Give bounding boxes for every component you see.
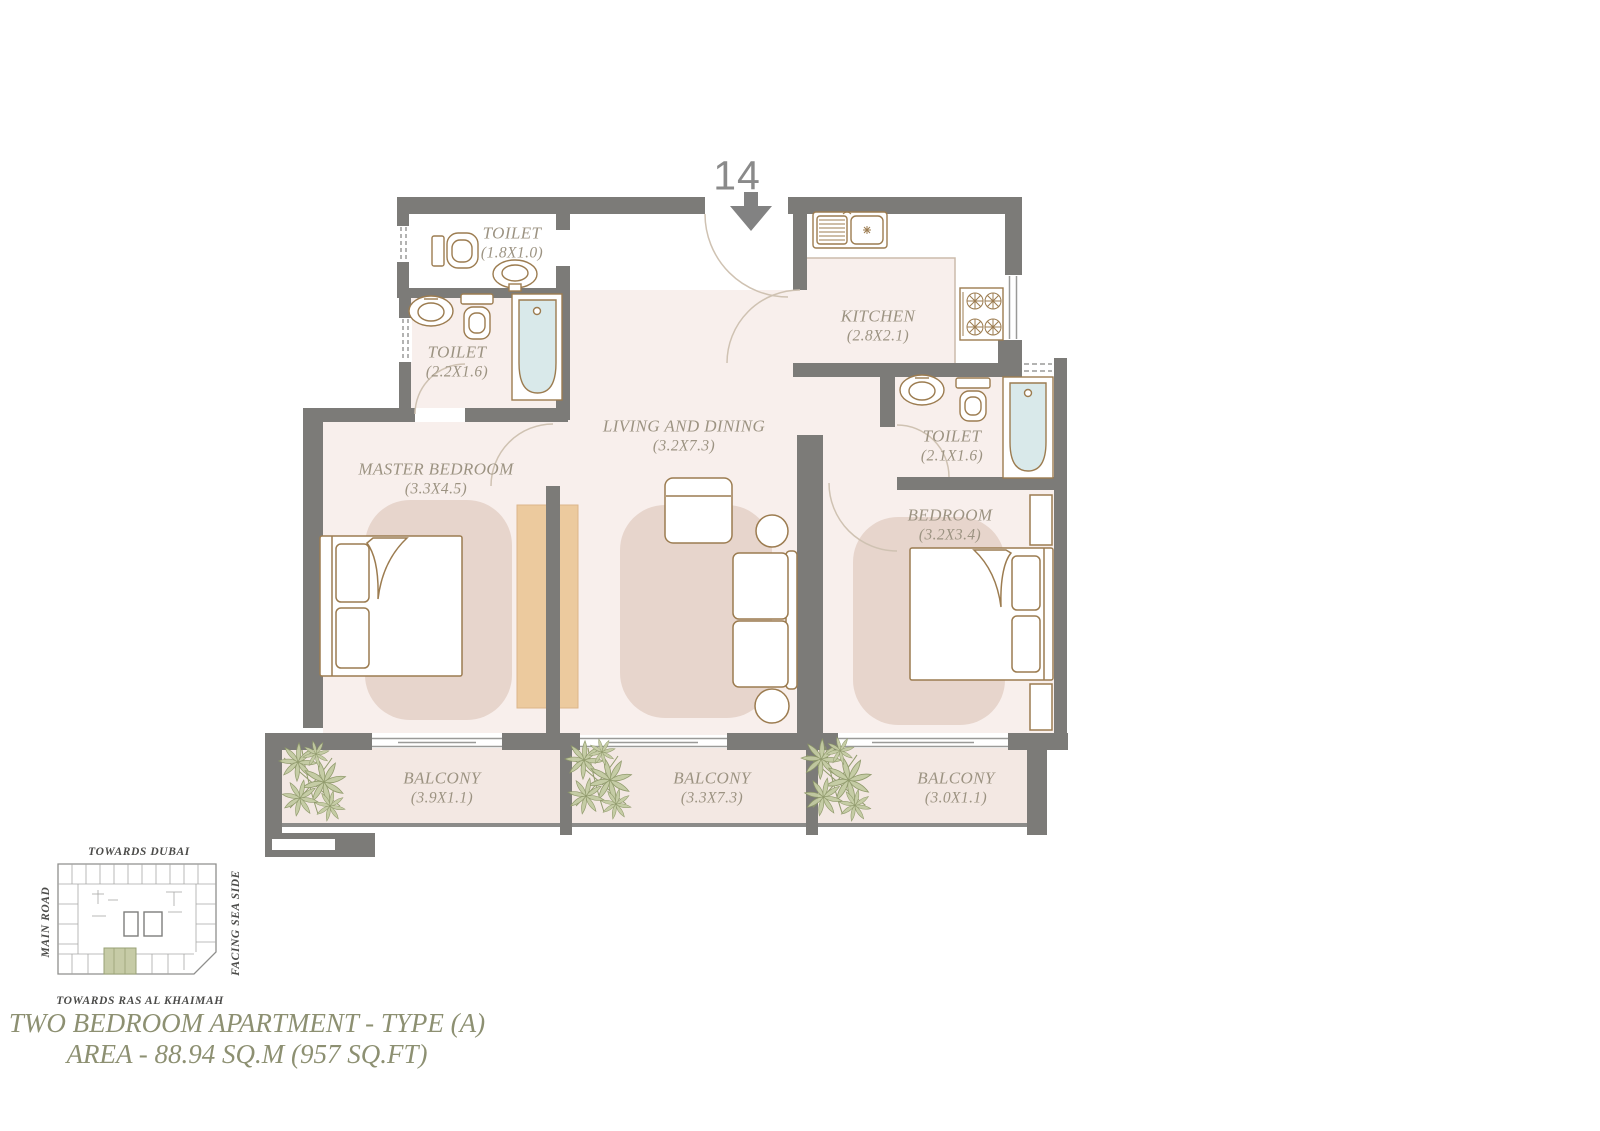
room-label-toilet-master: TOILET (2.2X1.6) xyxy=(426,342,488,383)
room-name: KITCHEN xyxy=(841,306,916,327)
room-label-master-bedroom: MASTER BEDROOM (3.3X4.5) xyxy=(358,459,513,500)
room-dims: (1.8X1.0) xyxy=(481,244,543,264)
side-table xyxy=(755,689,789,723)
room-label-kitchen: KITCHEN (2.8X2.1) xyxy=(841,306,916,347)
site-highlight-unit xyxy=(104,948,136,974)
site-label-towards-ras-al-khaimah: TOWARDS RAS AL KHAIMAH xyxy=(56,995,224,1007)
room-name: BEDROOM xyxy=(908,505,993,526)
room-dims: (3.2X3.4) xyxy=(908,526,993,546)
room-label-balcony-master: BALCONY (3.9X1.1) xyxy=(403,768,480,809)
room-dims: (2.8X2.1) xyxy=(841,327,916,347)
room-label-living-dining: LIVING AND DINING (3.2X7.3) xyxy=(603,416,765,457)
room-name: BALCONY xyxy=(403,768,480,789)
room-label-balcony-living: BALCONY (3.3X7.3) xyxy=(673,768,750,809)
room-dims: (3.3X7.3) xyxy=(673,789,750,809)
bathtub-toilet-master xyxy=(512,294,562,400)
unit-number: 14 xyxy=(713,153,761,200)
room-name: TOILET xyxy=(426,342,488,363)
room-dims: (3.3X4.5) xyxy=(358,480,513,500)
bedside-table xyxy=(1030,684,1052,730)
wc-toilet-master xyxy=(461,294,493,339)
room-name: TOILET xyxy=(481,223,543,244)
site-label-main-road: MAIN ROAD xyxy=(40,887,52,958)
room-label-bedroom: BEDROOM (3.2X3.4) xyxy=(908,505,993,546)
floorplan-canvas: 14 TOILET (1.8X1.0) TOILET (2.2X1.6) KIT… xyxy=(0,0,1600,1131)
room-name: BALCONY xyxy=(917,768,994,789)
plan-title-line1: TWO BEDROOM APARTMENT - TYPE (A) xyxy=(9,1008,485,1039)
room-dims: (3.2X7.3) xyxy=(603,437,765,457)
kitchen-sink xyxy=(813,212,887,248)
master-bed xyxy=(320,536,462,676)
sink-toilet-small xyxy=(493,260,537,291)
balcony-step-notch xyxy=(272,839,335,850)
sink-toilet-master xyxy=(409,296,453,326)
room-label-balcony-bedroom: BALCONY (3.0X1.1) xyxy=(917,768,994,809)
room-label-toilet-bedroom: TOILET (2.1X1.6) xyxy=(921,426,983,467)
wc-toilet-small xyxy=(432,233,478,268)
bedroom-bed xyxy=(910,548,1053,680)
site-label-facing-sea-side: FACING SEA SIDE xyxy=(230,870,242,976)
room-dims: (3.0X1.1) xyxy=(917,789,994,809)
plan-title: TWO BEDROOM APARTMENT - TYPE (A) AREA - … xyxy=(9,1008,485,1070)
room-name: LIVING AND DINING xyxy=(603,416,765,437)
wc-toilet-bedroom xyxy=(956,378,990,421)
room-label-toilet-small: TOILET (1.8X1.0) xyxy=(481,223,543,264)
bedside-table xyxy=(1030,495,1052,545)
room-dims: (2.2X1.6) xyxy=(426,363,488,383)
sink-toilet-bedroom xyxy=(900,375,944,405)
site-label-towards-dubai: TOWARDS DUBAI xyxy=(88,846,190,858)
room-dims: (2.1X1.6) xyxy=(921,447,983,467)
stove xyxy=(960,288,1003,340)
room-name: TOILET xyxy=(921,426,983,447)
plan-title-line2: AREA - 88.94 SQ.M (957 SQ.FT) xyxy=(9,1039,485,1070)
bathtub-toilet-bedroom xyxy=(1003,377,1053,478)
armchair xyxy=(665,478,732,543)
room-name: BALCONY xyxy=(673,768,750,789)
room-name: MASTER BEDROOM xyxy=(358,459,513,480)
room-dims: (3.9X1.1) xyxy=(403,789,480,809)
side-table xyxy=(756,515,788,547)
balcony-edge-line xyxy=(280,823,1027,827)
site-key-plan xyxy=(48,860,232,990)
